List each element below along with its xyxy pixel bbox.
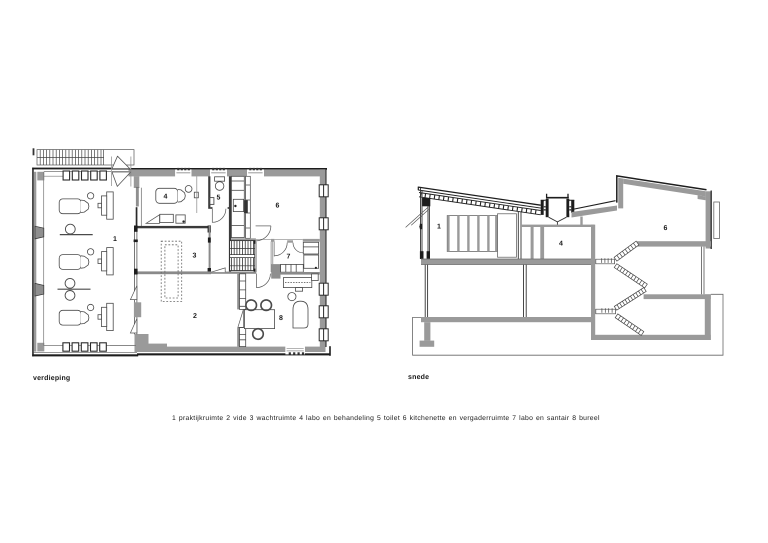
svg-text:1: 1 bbox=[437, 224, 441, 231]
svg-text:1: 1 bbox=[113, 236, 117, 243]
svg-text:4: 4 bbox=[164, 194, 168, 201]
svg-text:8: 8 bbox=[279, 315, 283, 322]
svg-text:snede: snede bbox=[408, 373, 429, 381]
svg-text:1 praktijkruimte 2 vide 3 wa: 1 praktijkruimte 2 vide 3 wachtruimte 4 … bbox=[172, 415, 600, 422]
svg-text:2: 2 bbox=[193, 313, 197, 320]
svg-text:5: 5 bbox=[217, 195, 221, 202]
svg-text:6: 6 bbox=[276, 203, 280, 210]
svg-text:verdieping: verdieping bbox=[33, 374, 70, 382]
svg-text:3: 3 bbox=[193, 253, 197, 260]
svg-text:4: 4 bbox=[559, 241, 563, 248]
svg-text:6: 6 bbox=[664, 225, 668, 232]
svg-text:7: 7 bbox=[287, 254, 291, 261]
